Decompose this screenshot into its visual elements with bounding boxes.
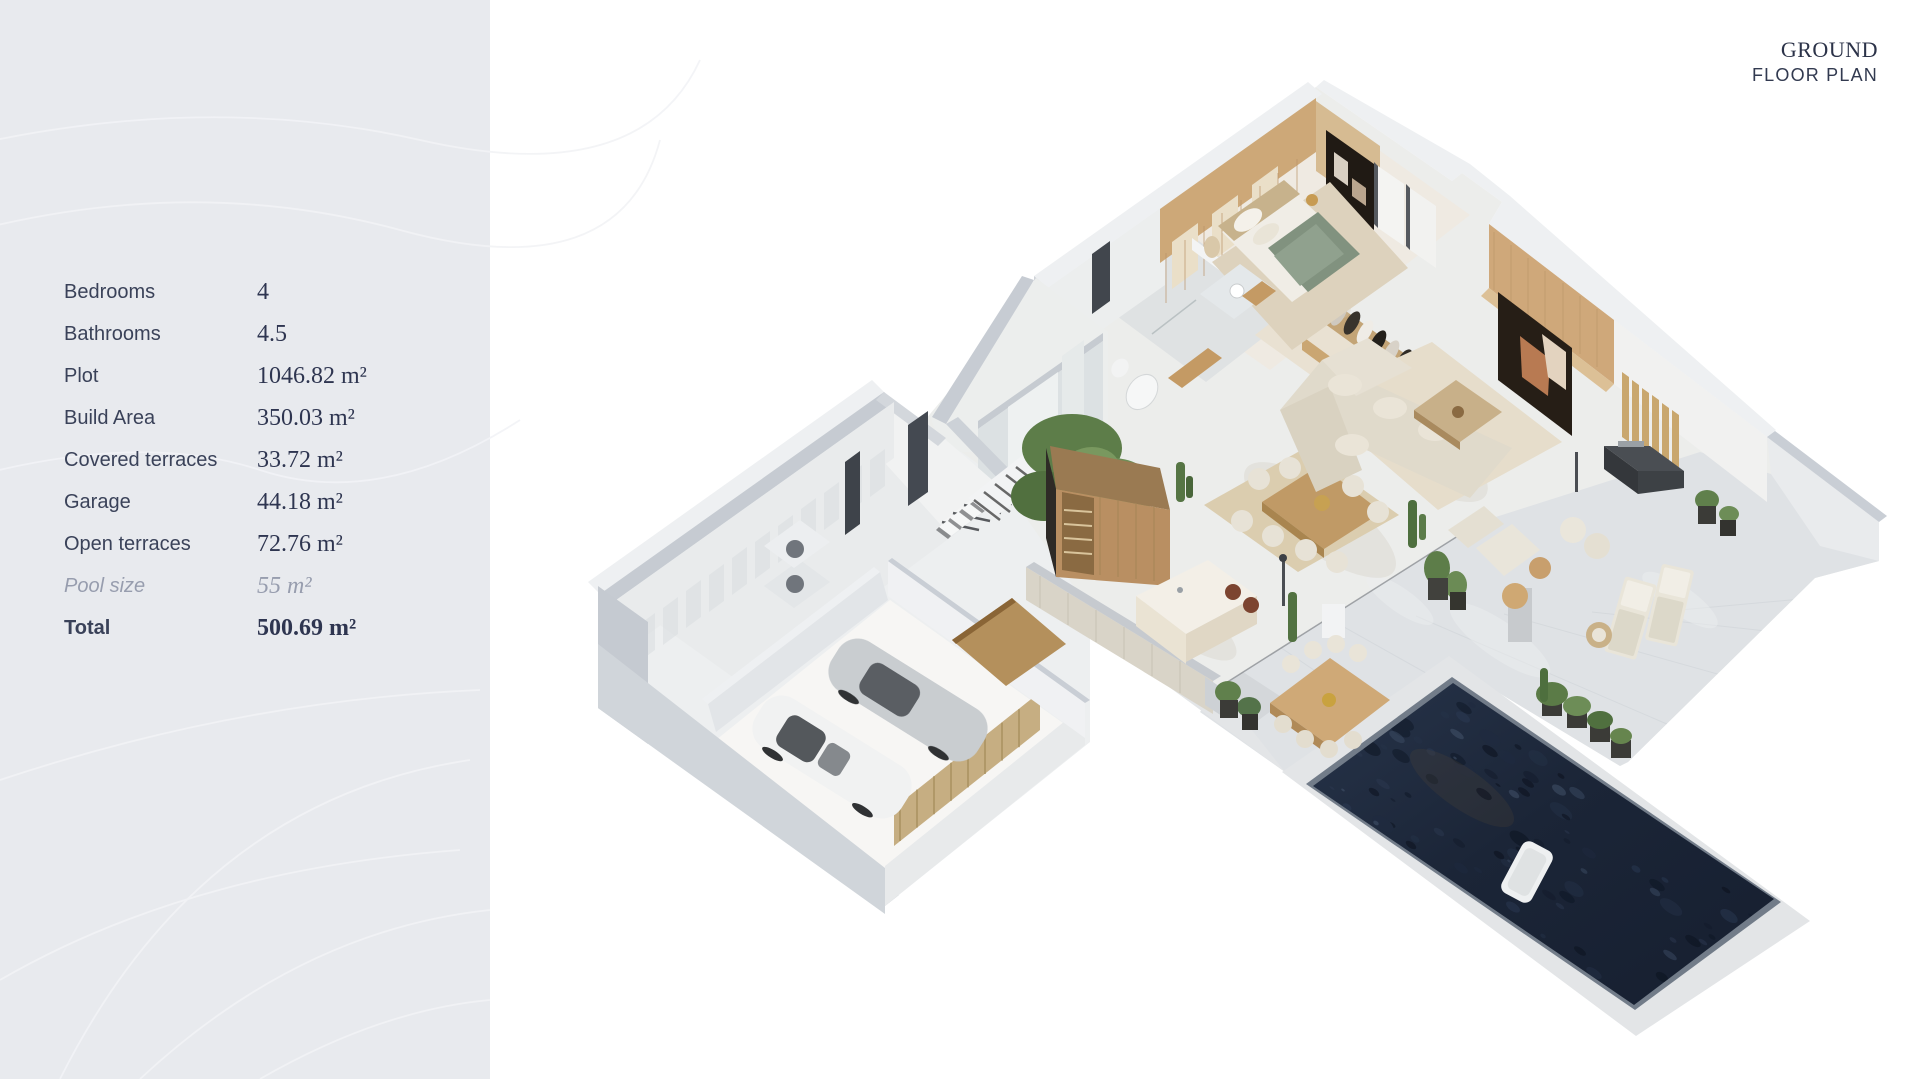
- svg-text:4.5: 4.5: [257, 321, 287, 347]
- svg-text:Build Area: Build Area: [64, 407, 156, 429]
- svg-text:Plot: Plot: [64, 365, 99, 387]
- svg-text:500.69 m²: 500.69 m²: [257, 615, 356, 641]
- svg-text:Garage: Garage: [64, 491, 131, 513]
- svg-text:Pool size: Pool size: [64, 575, 145, 597]
- svg-text:1046.82 m²: 1046.82 m²: [257, 363, 367, 389]
- svg-text:Bedrooms: Bedrooms: [64, 281, 155, 303]
- svg-text:Bathrooms: Bathrooms: [64, 323, 161, 345]
- svg-text:Total: Total: [64, 617, 110, 639]
- svg-text:55 m²: 55 m²: [257, 573, 312, 599]
- svg-text:GROUND: GROUND: [1781, 37, 1878, 62]
- svg-text:FLOOR PLAN: FLOOR PLAN: [1752, 65, 1878, 85]
- svg-text:33.72 m²: 33.72 m²: [257, 447, 343, 473]
- svg-text:4: 4: [257, 279, 269, 305]
- svg-text:350.03 m²: 350.03 m²: [257, 405, 355, 431]
- svg-text:72.76 m²: 72.76 m²: [257, 531, 343, 557]
- svg-text:Open terraces: Open terraces: [64, 533, 191, 555]
- svg-text:44.18 m²: 44.18 m²: [257, 489, 343, 515]
- svg-text:Covered terraces: Covered terraces: [64, 449, 217, 471]
